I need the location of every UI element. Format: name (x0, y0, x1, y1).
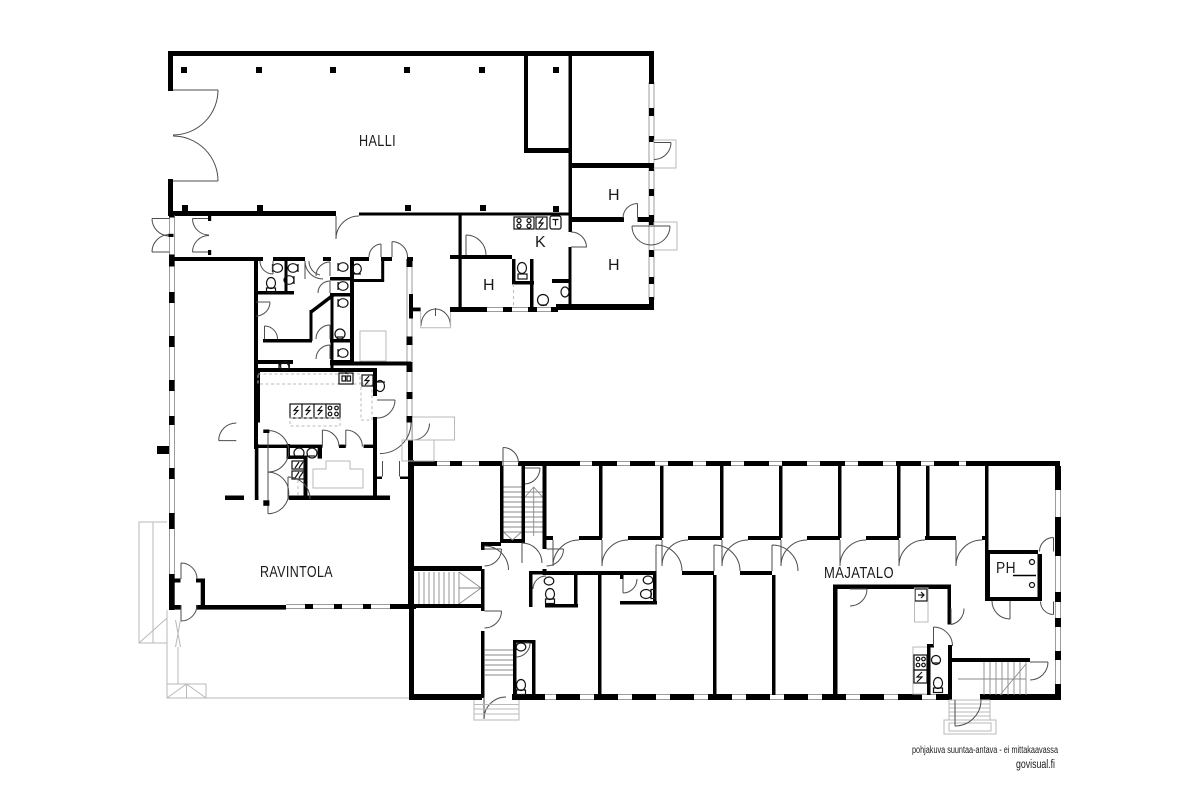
svg-text:govisual.fi: govisual.fi (1016, 759, 1055, 771)
svg-text:H: H (608, 257, 620, 274)
svg-text:H: H (608, 187, 620, 204)
svg-text:RAVINTOLA: RAVINTOLA (260, 564, 333, 581)
svg-text:pohjakuva suuntaa-antava - ei: pohjakuva suuntaa-antava - ei mittakaava… (912, 745, 1058, 756)
svg-text:MAJATALO: MAJATALO (824, 565, 894, 582)
svg-text:H: H (483, 277, 495, 294)
svg-text:PH: PH (996, 560, 1016, 577)
svg-text:K: K (535, 234, 546, 251)
svg-text:HALLI: HALLI (359, 133, 396, 150)
